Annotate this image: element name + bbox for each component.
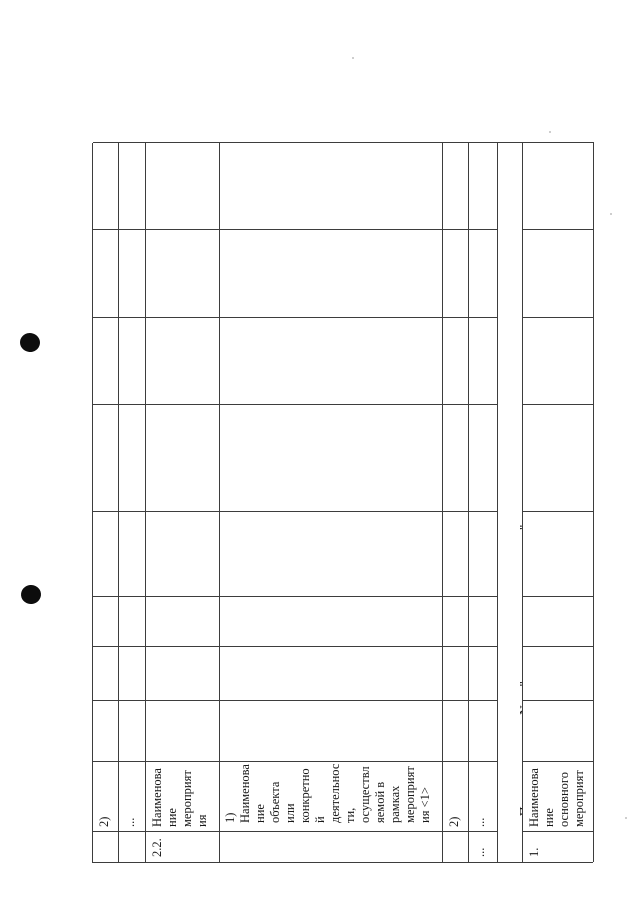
table-cell-name: 2) [93, 761, 119, 831]
table-cell-empty [523, 646, 594, 700]
table-cell-name: Наименова ние мероприят ия [146, 761, 220, 831]
table-cell-empty [443, 511, 469, 596]
table-cell-empty [93, 404, 119, 511]
table-cell-empty [146, 142, 220, 229]
table-cell-empty [220, 596, 443, 646]
table-cell-empty [146, 317, 220, 404]
table-cell-empty [220, 317, 443, 404]
table-cell-empty [220, 142, 443, 229]
table-cell-empty [443, 646, 469, 700]
table-cell-empty [146, 700, 220, 761]
table-cell-empty [119, 511, 146, 596]
table-cell-empty [469, 646, 498, 700]
table-cell-empty [220, 229, 443, 317]
table-cell-empty [146, 404, 220, 511]
table-cell-empty [469, 511, 498, 596]
table-cell-empty [119, 700, 146, 761]
table-cell-empty [119, 404, 146, 511]
table-cell-empty [523, 404, 594, 511]
program-measures-table: 2) ... 2.2. [92, 143, 593, 863]
table-cell-empty [93, 142, 119, 229]
table-cell-num [119, 831, 146, 862]
table-cell-name: ... [469, 761, 498, 831]
scanned-page: 2) ... 2.2. [0, 0, 640, 905]
table-cell-empty [469, 404, 498, 511]
table-cell-empty [146, 511, 220, 596]
table-cell-empty [443, 404, 469, 511]
table-cell-empty [119, 317, 146, 404]
table-cell-empty [469, 317, 498, 404]
table-cell-empty [93, 646, 119, 700]
table-cell-empty [93, 229, 119, 317]
table-cell-empty [523, 700, 594, 761]
table-cell-empty [443, 596, 469, 646]
punch-hole-bottom [20, 584, 42, 605]
rotated-table-region: 2) ... 2.2. [92, 143, 593, 863]
scan-speck [352, 57, 354, 59]
table-cell-empty [220, 646, 443, 700]
table-cell-num: 2.2. [146, 831, 220, 862]
punch-hole-top [19, 332, 41, 354]
table-cell-name: ... [119, 761, 146, 831]
table-cell-empty [119, 596, 146, 646]
table-cell-empty [469, 596, 498, 646]
table-cell-name: 1) Наименова ние объекта или конкретно й… [220, 761, 443, 831]
table-cell-name: Наименова ние основного мероприят [523, 761, 594, 831]
table-cell-empty [523, 142, 594, 229]
table-cell-empty [146, 646, 220, 700]
rotated-table: 2) ... 2.2. [92, 143, 593, 863]
table-cell-num [443, 831, 469, 862]
table-cell-name: 2) [443, 761, 469, 831]
table-cell-empty [220, 511, 443, 596]
table-cell-num: ... [469, 831, 498, 862]
table-cell-empty [220, 404, 443, 511]
table-cell-empty [119, 229, 146, 317]
table-cell-empty [469, 229, 498, 317]
table-cell-empty [443, 317, 469, 404]
table-cell-empty [443, 700, 469, 761]
scan-speck [625, 817, 627, 819]
table-cell-empty [93, 317, 119, 404]
table-cell-empty [523, 229, 594, 317]
table-cell-num [93, 831, 119, 862]
table-cell-num: 1. [523, 831, 594, 862]
table-cell-empty [443, 142, 469, 229]
table-cell-empty [469, 142, 498, 229]
table-cell-empty [93, 596, 119, 646]
table-cell-empty [146, 229, 220, 317]
table-cell-empty [220, 700, 443, 761]
table-cell-num [220, 831, 443, 862]
scan-speck [549, 131, 551, 133]
table-cell-empty [119, 646, 146, 700]
table-cell-empty [523, 317, 594, 404]
table-cell-empty [119, 142, 146, 229]
subprogram-header-row: Подпрограмма N... "" [498, 142, 523, 862]
table-cell-empty [523, 596, 594, 646]
table-cell-empty [469, 700, 498, 761]
table-cell-empty [523, 511, 594, 596]
table-cell-empty [146, 596, 220, 646]
table-cell-empty [93, 700, 119, 761]
scan-speck [610, 213, 612, 215]
table-cell-empty [443, 229, 469, 317]
table-cell-empty [93, 511, 119, 596]
